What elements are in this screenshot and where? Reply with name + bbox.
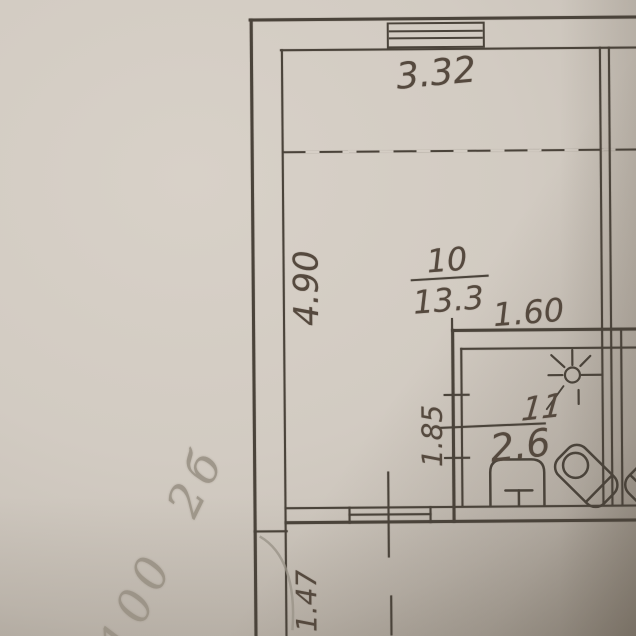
room-11-area: 2.6 [488,423,552,468]
floor-plan: 3.32 4.90 1.60 1.85 1.47 10 13.3 11 2.6 [0,0,636,636]
dimension-left-height: 4.90 [289,250,324,326]
dimension-top-width: 3.32 [395,52,478,95]
dimension-bath-width: 1.60 [492,294,566,331]
room-10-area: 13.3 [412,281,486,318]
floor-plan-photo: 3.32 4.90 1.60 1.85 1.47 10 13.3 11 2.6 … [0,0,636,636]
door-swing-arc [260,536,293,630]
adjacent-washbasin-icon [620,439,636,511]
dimension-bottom-left: 1.47 [293,570,321,633]
dimension-bath-height: 1.85 [419,405,447,468]
washbasin-icon [550,440,622,512]
room-10-number: 10 [425,242,468,277]
